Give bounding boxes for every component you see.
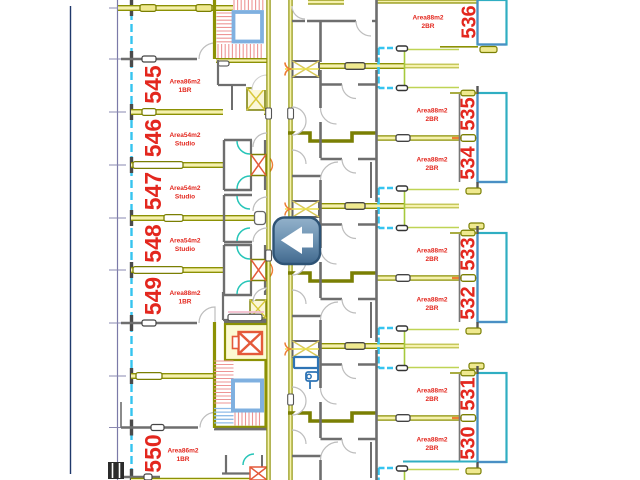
svg-text:Area86m2: Area86m2 xyxy=(169,79,200,86)
svg-text:2BR: 2BR xyxy=(425,445,438,452)
svg-text:545: 545 xyxy=(140,65,166,104)
svg-text:Area88m2: Area88m2 xyxy=(416,157,447,164)
svg-text:2BR: 2BR xyxy=(425,256,438,263)
svg-text:Area54m2: Area54m2 xyxy=(169,238,200,245)
svg-text:549: 549 xyxy=(140,277,166,315)
svg-text:Area88m2: Area88m2 xyxy=(169,290,200,297)
svg-text:533: 533 xyxy=(458,237,480,270)
svg-text:2BR: 2BR xyxy=(425,165,438,172)
svg-text:550: 550 xyxy=(140,434,166,472)
svg-text:536: 536 xyxy=(459,5,481,38)
svg-text:Area86m2: Area86m2 xyxy=(167,448,198,455)
svg-text:548: 548 xyxy=(140,224,166,263)
svg-text:Area54m2: Area54m2 xyxy=(169,132,200,139)
svg-text:534: 534 xyxy=(458,145,480,179)
svg-text:2BR: 2BR xyxy=(425,305,438,312)
svg-text:Area88m2: Area88m2 xyxy=(416,248,447,255)
svg-text:Area88m2: Area88m2 xyxy=(416,437,447,444)
svg-text:Studio: Studio xyxy=(175,194,195,201)
svg-text:546: 546 xyxy=(140,119,166,157)
svg-text:2BR: 2BR xyxy=(425,396,438,403)
svg-text:2BR: 2BR xyxy=(425,116,438,123)
svg-text:531: 531 xyxy=(458,377,480,410)
svg-text:Area88m2: Area88m2 xyxy=(416,108,447,115)
svg-text:Area88m2: Area88m2 xyxy=(412,15,443,22)
svg-text:1BR: 1BR xyxy=(176,456,189,463)
svg-text:1BR: 1BR xyxy=(178,299,191,306)
svg-text:532: 532 xyxy=(458,286,480,319)
svg-text:Area88m2: Area88m2 xyxy=(416,297,447,304)
svg-text:530: 530 xyxy=(458,426,480,459)
svg-text:Studio: Studio xyxy=(175,246,195,253)
svg-text:Studio: Studio xyxy=(175,141,195,148)
svg-text:2BR: 2BR xyxy=(421,23,434,30)
svg-text:1BR: 1BR xyxy=(178,87,191,94)
svg-text:Area88m2: Area88m2 xyxy=(416,388,447,395)
svg-text:535: 535 xyxy=(458,97,480,130)
svg-text:547: 547 xyxy=(140,172,166,210)
svg-text:Area54m2: Area54m2 xyxy=(169,185,200,192)
